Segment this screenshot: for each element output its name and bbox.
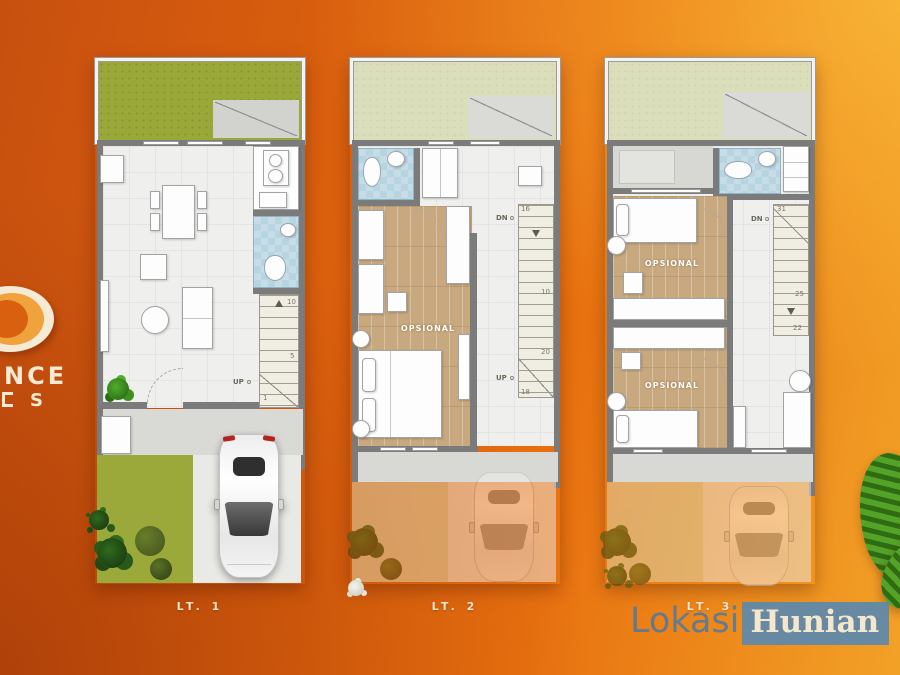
stove-burner-icon [269,154,282,167]
car-mirror-icon [278,499,284,510]
plant-icon [607,566,627,586]
chair [150,213,160,231]
sofa-cushion-line [183,318,212,319]
plant-icon [107,378,129,400]
stair-number: 10 [287,298,296,306]
utility-box [101,416,131,454]
watermark: LokasiHunian [630,601,889,645]
car-rear-window [743,502,775,515]
stair-number: 5 [290,352,294,360]
entry-pad [213,100,299,138]
window [187,141,223,145]
plant-icon [603,528,631,556]
washbasin-icon [280,223,296,237]
car-windshield [479,524,528,550]
wall [97,402,147,409]
window [143,141,179,145]
car-windshield [734,533,783,557]
window [245,141,271,145]
logo-text-line1: NCE [4,362,67,390]
floorplan-lt3: OPSIONAL OPSIONAL 31 DN 25 22 [605,58,815,584]
garden-area [95,58,305,144]
bathroom [253,216,299,288]
side-table [140,254,167,280]
floorplan-lt2: OPSIONAL 16 DN 10 20 UP 18 [350,58,560,584]
poster-background: NCE S 10 5 UP 1 [0,0,900,675]
kitchen-sink-icon [259,192,287,208]
dining-table [162,185,195,239]
ghost-outdoor [350,58,560,584]
stair-landing [259,374,299,408]
white-plant-icon [348,580,364,596]
car-windshield [224,502,273,537]
sofa [182,287,213,349]
watermark-lokasi: Lokasi [630,601,739,641]
logo-text-line2: S [30,390,49,411]
chair [150,191,160,209]
entry-diagonal [215,102,297,136]
car-mirror-icon [788,531,794,542]
toilet-icon [264,255,286,281]
stair-dot [247,380,251,384]
floor-label-lt2: LT. 2 [350,600,560,613]
car-mirror-icon [724,531,730,542]
car-mirror-icon [469,522,475,533]
plant-icon [97,538,127,568]
chair [197,213,207,231]
car-top-view-faded [729,486,789,586]
stair-arrow-icon [275,300,283,307]
plant-icon [350,528,378,556]
logo-partial-letter [2,392,13,407]
plant-icon [89,510,109,530]
stair-number: 1 [263,394,267,402]
stove-burner-icon [268,169,283,183]
car-top-view-faded [474,472,534,582]
watermark-hunian: Hunian [742,602,889,645]
car-hood-line [227,564,270,565]
floor-label-lt1: LT. 1 [95,600,305,613]
tv-cabinet [100,280,109,352]
bush-icon [380,558,402,580]
bush-icon [629,563,651,585]
chair [197,191,207,209]
car-top-view [219,434,279,578]
car-mirror-icon [214,499,220,510]
bush-icon [135,526,165,556]
car-rear-window [233,457,265,476]
wall [183,402,259,409]
floorplan-lt1: 10 5 UP 1 [95,58,305,584]
up-label: UP [233,378,244,386]
coffee-table [141,306,169,334]
car-mirror-icon [533,522,539,533]
cabinet [100,155,124,183]
ghost-outdoor [605,58,815,584]
car-rear-window [488,490,520,504]
bush-icon [150,558,172,580]
